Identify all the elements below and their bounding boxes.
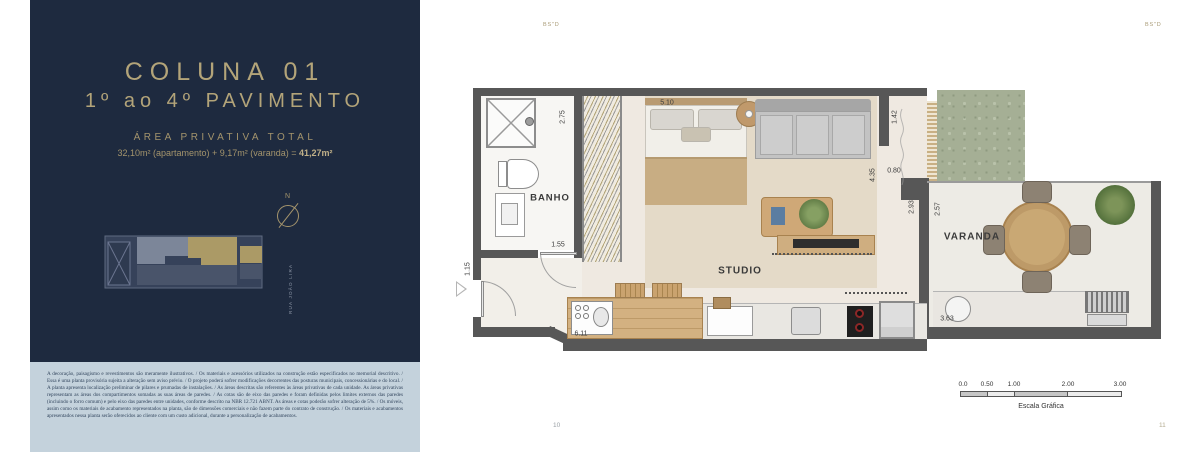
private-area-heading: ÁREA PRIVATIVA TOTAL bbox=[30, 132, 420, 143]
room-label-studio: STUDIO bbox=[718, 266, 762, 277]
desk bbox=[707, 306, 753, 336]
dimension-label: 5.10 bbox=[660, 100, 674, 107]
scale-tick: 2.00 bbox=[1062, 381, 1075, 388]
area-total: 41,27m² bbox=[299, 148, 333, 158]
bsd-mark-right: BS"D bbox=[1145, 22, 1161, 28]
scale-bar-track bbox=[960, 391, 1122, 397]
disclaimer-text: A decoração, paisagismo e revestimentos … bbox=[30, 362, 420, 420]
burner-ring bbox=[855, 309, 864, 318]
kitchen-sink bbox=[593, 307, 609, 327]
dimension-label: 1.15 bbox=[465, 262, 472, 276]
grill-drawer bbox=[1087, 314, 1127, 326]
dimension-label: 3.63 bbox=[940, 316, 954, 323]
scale-tick: 0.50 bbox=[981, 381, 994, 388]
toilet bbox=[498, 161, 507, 187]
dining-chair bbox=[1022, 181, 1052, 203]
room-label-varanda: VARANDA bbox=[944, 232, 1000, 243]
stool bbox=[652, 283, 682, 298]
potted-plant bbox=[1095, 185, 1135, 225]
floor-range-subtitle: 1º ao 4º PAVIMENTO bbox=[30, 90, 420, 113]
bsd-mark-left: BS"D bbox=[543, 22, 559, 28]
page-number-right: 11 bbox=[1159, 422, 1166, 429]
dining-chair bbox=[1022, 271, 1052, 293]
room-label-banho: BANHO bbox=[530, 193, 570, 204]
barbecue-grill bbox=[1085, 291, 1129, 313]
burner bbox=[575, 305, 581, 311]
bathroom-door bbox=[540, 252, 577, 255]
plant bbox=[799, 199, 829, 229]
wall bbox=[574, 96, 582, 258]
dimension-label: 2.75 bbox=[560, 110, 567, 124]
north-compass-icon: N bbox=[266, 193, 312, 239]
wardrobe-closet bbox=[582, 96, 622, 262]
wall bbox=[481, 250, 538, 258]
scale-tick: 3.00 bbox=[1114, 381, 1127, 388]
info-panel: COLUNA 01 1º ao 4º PAVIMENTO ÁREA PRIVAT… bbox=[30, 0, 420, 362]
dimension-label: 0.80 bbox=[887, 168, 901, 175]
entry-arrow-icon bbox=[456, 281, 467, 297]
wall bbox=[929, 327, 1161, 339]
page-number-left: 10 bbox=[553, 422, 560, 429]
garden-grass bbox=[937, 90, 1025, 181]
burner bbox=[583, 313, 589, 319]
wall bbox=[879, 96, 889, 146]
toilet-bowl bbox=[507, 159, 539, 189]
sofa-cushion bbox=[760, 115, 793, 155]
wall bbox=[563, 339, 927, 351]
stool bbox=[615, 283, 645, 298]
street-name-label: RUA JOÃO LIRA bbox=[288, 250, 293, 314]
dining-table bbox=[1001, 201, 1073, 273]
sofa-cushion bbox=[832, 115, 865, 155]
curtain bbox=[927, 101, 937, 181]
bed-blanket bbox=[645, 157, 747, 205]
dimension-label: 1.55 bbox=[551, 242, 565, 249]
wall bbox=[1151, 181, 1161, 339]
desk-chair bbox=[713, 297, 731, 309]
scale-tick: 1.00 bbox=[1008, 381, 1021, 388]
area-breakdown: 32,10m² (apartamento) + 9,17m² (varanda)… bbox=[117, 148, 299, 158]
floor-plan: BANHO STUDIO VARANDA 2.75 1.55 5.10 1.42… bbox=[455, 85, 1161, 355]
wall bbox=[473, 88, 927, 96]
burner-ring bbox=[855, 323, 864, 332]
pillow bbox=[681, 127, 711, 142]
projection-line bbox=[845, 292, 907, 294]
tv bbox=[793, 239, 859, 248]
sink bbox=[791, 307, 821, 335]
disclaimer-block: A decoração, paisagismo e revestimentos … bbox=[30, 362, 420, 452]
north-label: N bbox=[285, 193, 291, 200]
dimension-label: 6.11 bbox=[574, 331, 587, 338]
burner bbox=[575, 313, 581, 319]
dimension-label: 1.42 bbox=[892, 110, 899, 124]
shower-head bbox=[525, 117, 534, 126]
dining-chair bbox=[1069, 225, 1091, 255]
key-plan bbox=[104, 233, 264, 291]
wall bbox=[473, 327, 555, 337]
column-title: COLUNA 01 bbox=[30, 58, 420, 87]
dimension-label: 2.93 bbox=[909, 200, 916, 214]
fridge bbox=[879, 301, 915, 339]
scale-bar-label: Escala Gráfica bbox=[960, 403, 1122, 410]
burner bbox=[583, 305, 589, 311]
entry-door bbox=[481, 281, 484, 317]
wall bbox=[473, 88, 481, 280]
dimension-label: 4.35 bbox=[870, 168, 877, 182]
sofa-cushion bbox=[796, 115, 829, 155]
projection-line bbox=[772, 253, 872, 255]
table-lamp bbox=[745, 110, 753, 118]
book bbox=[771, 207, 785, 225]
scale-bar: 0.0 0.50 1.00 2.00 3.00 Escala Gráfica bbox=[960, 381, 1122, 415]
scale-tick: 0.0 bbox=[958, 381, 967, 388]
bathroom-sink bbox=[501, 203, 518, 225]
dimension-label: 2.57 bbox=[935, 202, 942, 216]
area-detail: 32,10m² (apartamento) + 9,17m² (varanda)… bbox=[30, 148, 420, 158]
